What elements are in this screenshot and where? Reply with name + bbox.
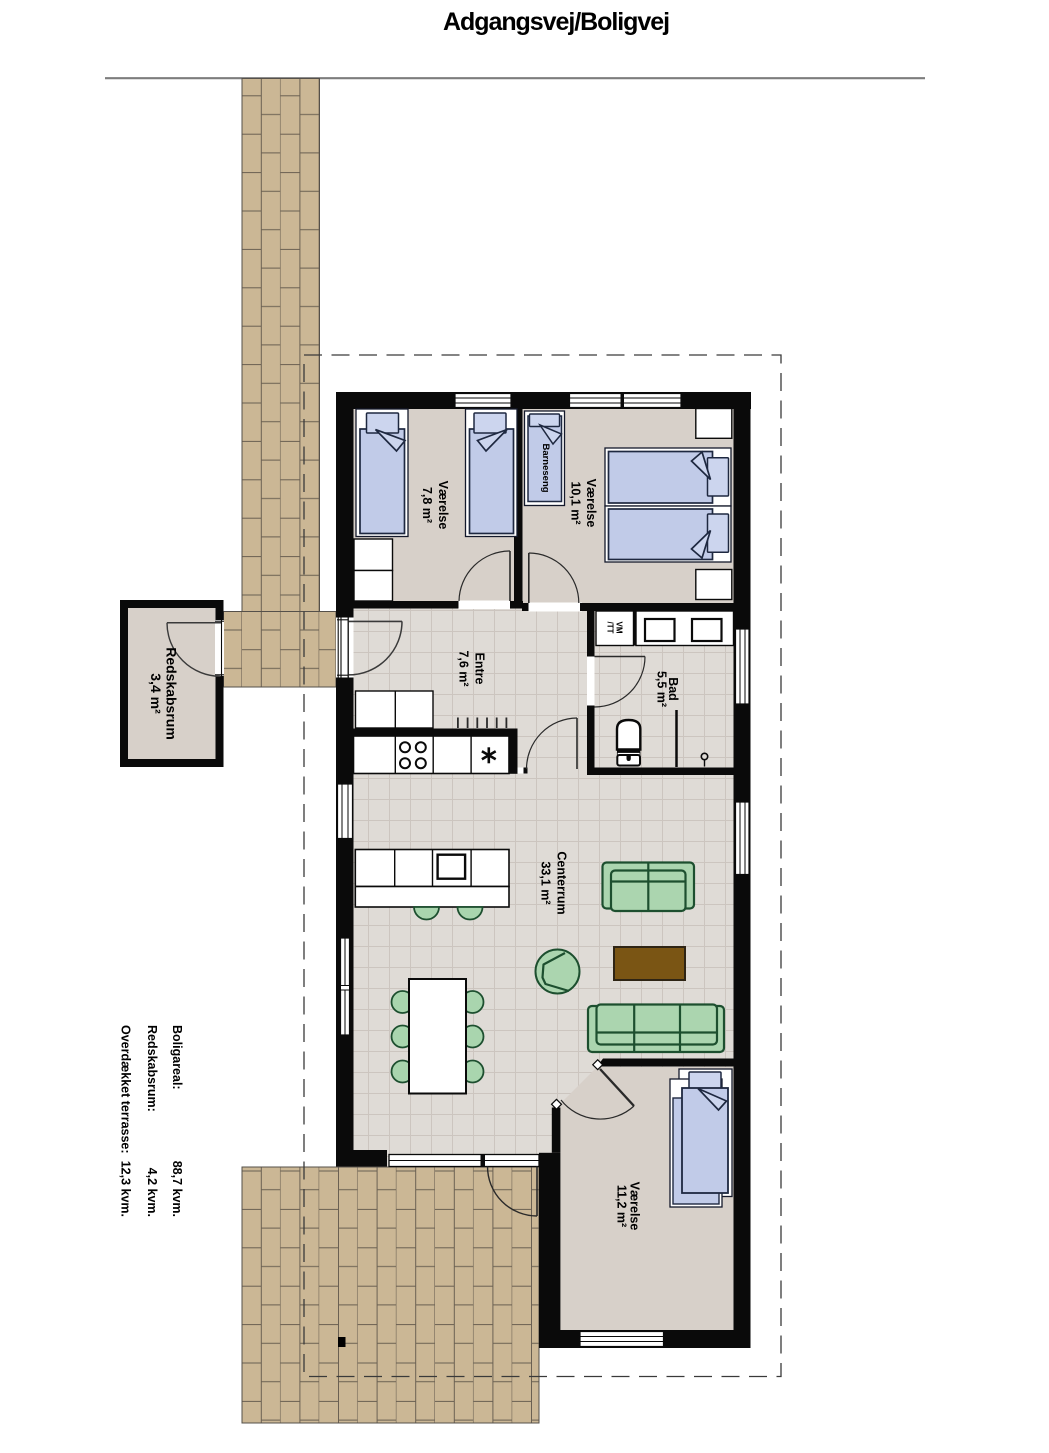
svg-text:Centerrum: Centerrum	[555, 851, 569, 914]
svg-text:11,2 m²: 11,2 m²	[615, 1185, 629, 1227]
svg-text:3,4 m²: 3,4 m²	[148, 673, 164, 714]
svg-text:Boligareal:: Boligareal:	[170, 1025, 184, 1090]
svg-text:33,1 m²: 33,1 m²	[539, 861, 553, 904]
svg-text:Redskabsrum: Redskabsrum	[164, 647, 180, 740]
svg-text:Værelse: Værelse	[584, 479, 598, 528]
svg-text:7,6 m²: 7,6 m²	[457, 650, 471, 686]
svg-text:Redskabsrum:: Redskabsrum:	[145, 1025, 159, 1112]
svg-text:4,2 kvm.: 4,2 kvm.	[145, 1168, 159, 1217]
svg-text:Værelse: Værelse	[436, 481, 450, 530]
svg-text:10,1 m²: 10,1 m²	[569, 481, 583, 524]
svg-text:Barneseng: Barneseng	[540, 443, 551, 492]
svg-text:12,3 kvm.: 12,3 kvm.	[119, 1161, 133, 1217]
svg-text:/TT: /TT	[606, 622, 615, 634]
svg-text:7,8 m²: 7,8 m²	[420, 487, 434, 523]
svg-text:Entre: Entre	[473, 653, 487, 685]
svg-text:VM: VM	[615, 622, 624, 634]
svg-text:Adgangsvej/Boligvej: Adgangsvej/Boligvej	[443, 8, 669, 36]
svg-text:Værelse: Værelse	[628, 1182, 642, 1231]
svg-text:5,5 m²: 5,5 m²	[655, 671, 669, 707]
svg-text:88,7 kvm.: 88,7 kvm.	[170, 1161, 184, 1217]
svg-text:Overdækket terrasse:: Overdækket terrasse:	[119, 1025, 133, 1154]
